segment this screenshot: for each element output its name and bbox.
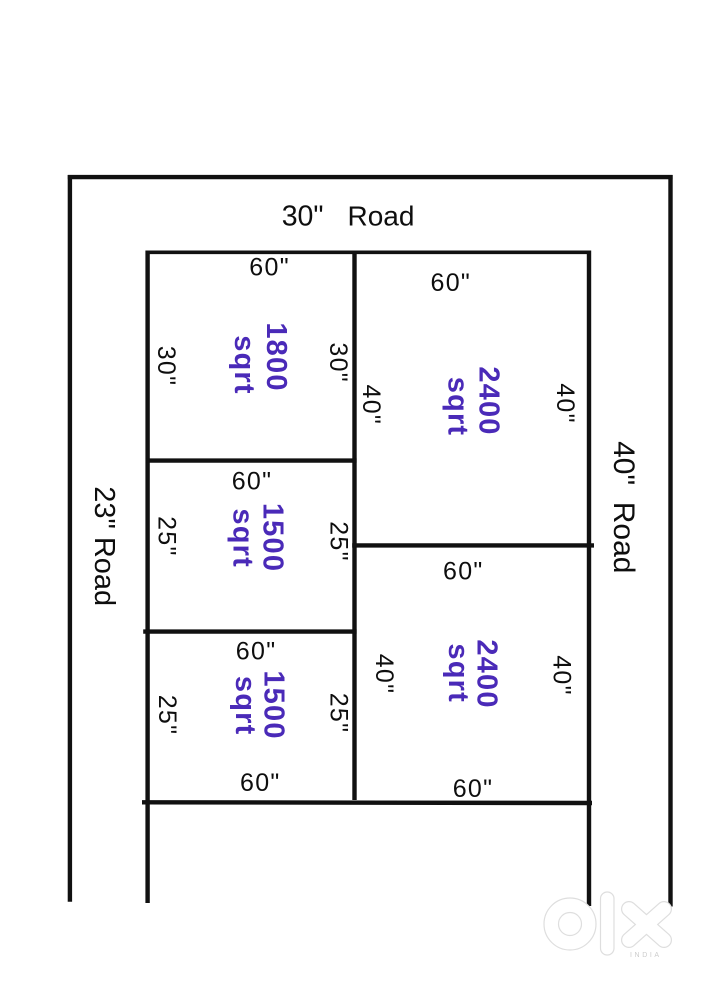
svg-text:60": 60" (453, 775, 494, 803)
svg-text:30": 30" (152, 346, 180, 387)
svg-text:Road: Road (348, 201, 415, 232)
svg-text:60": 60" (236, 638, 277, 666)
svg-text:25": 25" (325, 521, 353, 562)
svg-text:60": 60" (232, 468, 273, 496)
svg-text:1800: 1800 (260, 322, 292, 391)
svg-text:1500: 1500 (257, 503, 289, 572)
svg-text:25": 25" (153, 695, 181, 736)
svg-text:2400: 2400 (472, 366, 504, 435)
svg-text:25": 25" (153, 516, 181, 557)
svg-text:60": 60" (443, 558, 484, 586)
svg-text:23" Road: 23" Road (88, 486, 120, 606)
svg-text:40" Road: 40" Road (607, 441, 640, 573)
svg-text:60": 60" (431, 269, 472, 297)
svg-text:40": 40" (370, 654, 398, 695)
svg-text:sqrt: sqrt (227, 508, 259, 568)
svg-text:2400: 2400 (471, 639, 503, 708)
svg-text:1500: 1500 (258, 670, 290, 739)
svg-text:60": 60" (249, 254, 290, 282)
svg-text:25": 25" (325, 693, 353, 734)
svg-text:40": 40" (357, 385, 385, 426)
svg-text:sqrt: sqrt (228, 335, 260, 395)
svg-text:INDIA: INDIA (630, 952, 662, 959)
svg-text:30": 30" (324, 342, 352, 383)
svg-text:sqrt: sqrt (442, 643, 474, 703)
svg-text:40": 40" (548, 655, 576, 696)
svg-text:30": 30" (282, 201, 324, 233)
svg-text:sqrt: sqrt (442, 377, 474, 437)
svg-text:sqrt: sqrt (229, 676, 261, 736)
svg-text:60": 60" (240, 769, 281, 797)
svg-text:40": 40" (551, 383, 579, 424)
